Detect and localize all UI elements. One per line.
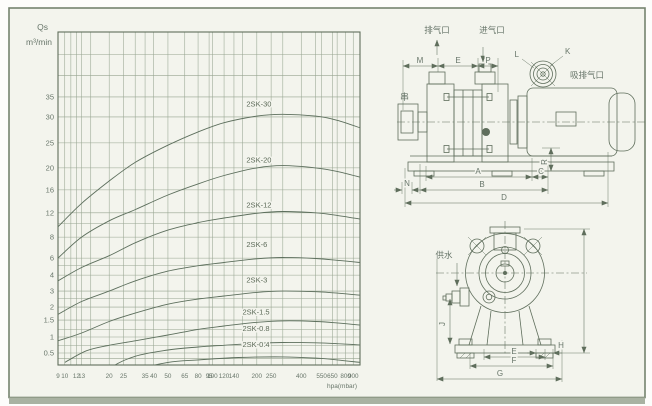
exhaust-port-label: 排气口	[424, 25, 450, 35]
dim-label-M: M	[417, 56, 424, 65]
x-tick-label: 9	[56, 373, 60, 380]
x-tick-label: 400	[296, 373, 307, 380]
page-artwork: 9101213202535405065809510012014020025040…	[0, 0, 652, 406]
y-tick-label: 3	[50, 287, 54, 296]
suction-exhaust-port-label: 吸排气口	[570, 70, 604, 80]
dim-label-E: E	[455, 56, 460, 65]
intake-port-label: 进气口	[479, 25, 505, 35]
y-tick-label: 4	[50, 271, 54, 280]
y-tick-label: 8	[50, 233, 54, 242]
page-edge-band	[9, 398, 645, 405]
x-tick-label: 80	[195, 373, 203, 380]
x-tick-label: 35	[142, 373, 150, 380]
dim-label-N: N	[404, 179, 410, 188]
curve-label: 2SK-3	[246, 276, 267, 285]
x-tick-label: 25	[120, 373, 128, 380]
y-tick-label: 20	[46, 163, 54, 172]
water-supply-label: 供水	[435, 250, 453, 260]
catalog-page-scan: 9101213202535405065809510012014020025040…	[0, 0, 652, 406]
x-tick-label: 650	[327, 373, 338, 380]
dim-label-H: H	[558, 341, 564, 350]
dim-label-A: A	[475, 167, 481, 176]
y-tick-label: 2	[50, 303, 54, 312]
y-tick-label: 12	[46, 208, 54, 217]
curve-label: 2SK-20	[246, 155, 271, 164]
drain-plug	[482, 128, 490, 136]
dim-label-G: G	[497, 369, 503, 378]
curve-label: 2SK-6	[246, 240, 267, 249]
curve-label: 2SK-12	[246, 201, 271, 210]
curve-label: 2SK-1.5	[243, 307, 270, 316]
dim-label-P: P	[485, 56, 490, 65]
curve-label: 2SK-30	[246, 100, 271, 109]
x-tick-label: 200	[252, 373, 263, 380]
x-tick-label: 13	[78, 373, 86, 380]
dim-label-F: F	[512, 356, 517, 365]
dim-label-B: B	[479, 180, 484, 189]
x-tick-label: 10	[61, 373, 69, 380]
y-tick-label: 25	[46, 138, 54, 147]
x-tick-label: 250	[266, 373, 277, 380]
x-tick-label: 40	[150, 373, 158, 380]
dim-label-L: L	[515, 50, 520, 59]
series-mark-label: 串	[400, 92, 409, 102]
x-axis-unit: hpa(mbar)	[327, 383, 357, 390]
curve-label: 2SK-0.4	[243, 340, 270, 349]
y-tick-label: 16	[46, 185, 54, 194]
dim-label-D: D	[501, 193, 507, 202]
y-tick-label: 1	[50, 333, 54, 342]
x-tick-label: 900	[348, 373, 359, 380]
y-tick-label: 1.5	[44, 316, 54, 325]
dim-label-E2: E	[511, 347, 516, 356]
x-tick-label: 140	[229, 373, 240, 380]
dim-label-R: R	[540, 159, 549, 165]
dim-label-J: J	[438, 322, 447, 326]
y-axis-unit: m³/min	[26, 37, 52, 47]
y-axis-title: Qs	[37, 22, 48, 32]
dim-label-K: K	[565, 47, 571, 56]
x-tick-label: 65	[181, 373, 189, 380]
x-tick-label: 100	[207, 373, 218, 380]
y-tick-label: 0.5	[44, 349, 54, 358]
x-tick-label: 550	[316, 373, 327, 380]
y-tick-label: 35	[46, 92, 54, 101]
x-tick-label: 50	[164, 373, 172, 380]
y-tick-label: 6	[50, 254, 54, 263]
y-tick-label: 30	[46, 112, 54, 121]
x-tick-label: 20	[106, 373, 114, 380]
curve-label: 2SK-0.8	[243, 324, 270, 333]
dim-label-C: C	[538, 167, 544, 176]
